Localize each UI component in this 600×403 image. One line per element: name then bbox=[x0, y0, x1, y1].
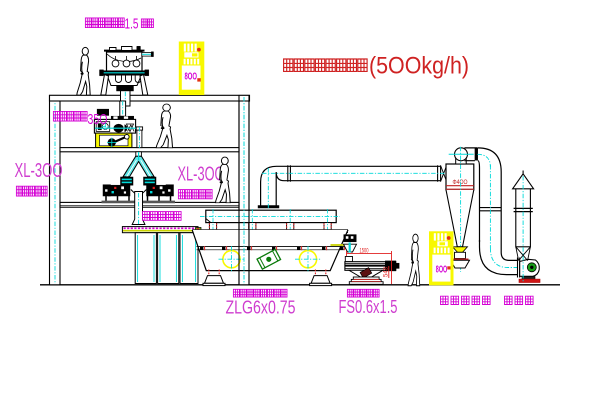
svg-text:ZLG6x0.75: ZLG6x0.75 bbox=[226, 297, 296, 318]
svg-text:8OO: 8OO bbox=[185, 71, 198, 83]
svg-text:XL-3OO: XL-3OO bbox=[178, 164, 225, 186]
svg-text:8OO: 8OO bbox=[436, 263, 448, 275]
svg-text:1.5: 1.5 bbox=[125, 17, 139, 33]
svg-text:35O: 35O bbox=[88, 111, 108, 128]
svg-text:1500: 1500 bbox=[360, 247, 369, 254]
svg-text:FS0.6x1.5: FS0.6x1.5 bbox=[339, 296, 398, 317]
svg-text:548: 548 bbox=[383, 266, 389, 277]
svg-text:Φ4OO: Φ4OO bbox=[453, 179, 468, 186]
svg-text:XL-3OO: XL-3OO bbox=[15, 160, 63, 182]
svg-text:(5OOkg/h): (5OOkg/h) bbox=[369, 53, 469, 80]
